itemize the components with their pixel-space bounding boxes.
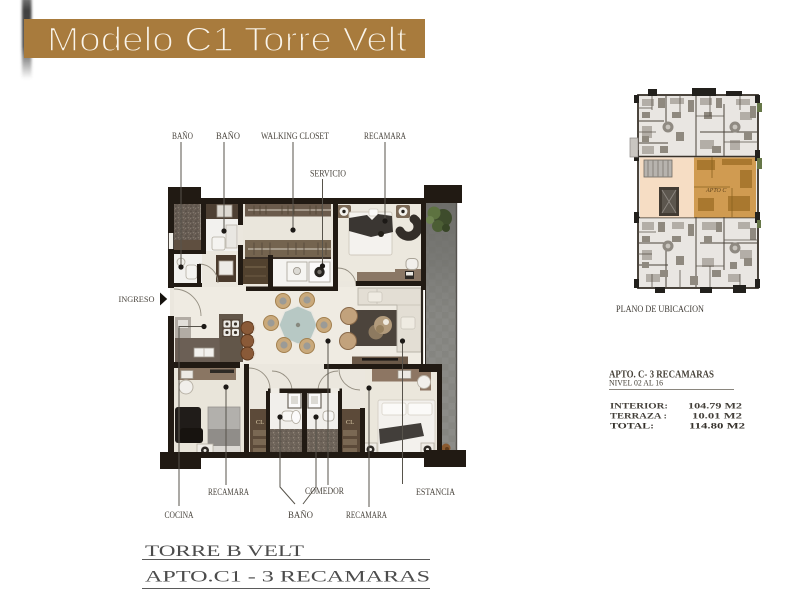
svg-text:NIVEL 02 AL 16: NIVEL 02 AL 16 bbox=[609, 379, 663, 388]
svg-text:ESTANCIA: ESTANCIA bbox=[416, 487, 455, 497]
svg-text:BAÑO: BAÑO bbox=[288, 510, 313, 520]
svg-text:RECAMARA: RECAMARA bbox=[208, 487, 249, 497]
svg-text:WALKING CLOSET: WALKING CLOSET bbox=[261, 131, 329, 141]
svg-text:APTO C: APTO C bbox=[705, 188, 727, 194]
svg-text:INGRESO: INGRESO bbox=[119, 294, 155, 304]
svg-text:CL: CL bbox=[346, 419, 354, 426]
svg-text:10.01 M2: 10.01 M2 bbox=[692, 412, 742, 421]
svg-text:COMEDOR: COMEDOR bbox=[305, 486, 344, 496]
svg-text:TOTAL:: TOTAL: bbox=[610, 421, 654, 431]
svg-text:APTO.C1 - 3 RECAMARAS: APTO.C1 - 3 RECAMARAS bbox=[145, 569, 430, 586]
svg-text:TORRE B VELT: TORRE B VELT bbox=[145, 543, 304, 560]
svg-text:RECAMARA: RECAMARA bbox=[346, 510, 387, 520]
svg-text:104.79 M2: 104.79 M2 bbox=[688, 402, 742, 411]
svg-text:114.80 M2: 114.80 M2 bbox=[689, 421, 745, 431]
svg-text:RECAMARA: RECAMARA bbox=[364, 131, 406, 141]
svg-text:COCINA: COCINA bbox=[165, 510, 194, 520]
svg-text:PLANO DE UBICACION: PLANO DE UBICACION bbox=[616, 305, 704, 315]
svg-text:BAÑO: BAÑO bbox=[216, 131, 240, 141]
svg-text:CL: CL bbox=[256, 419, 264, 426]
svg-text:INTERIOR:: INTERIOR: bbox=[610, 402, 668, 411]
svg-text:BAÑO: BAÑO bbox=[172, 131, 193, 141]
svg-text:Modelo C1 Torre Velt: Modelo C1 Torre Velt bbox=[47, 21, 408, 59]
svg-text:TERRAZA :: TERRAZA : bbox=[610, 412, 667, 421]
svg-text:SERVICIO: SERVICIO bbox=[310, 169, 346, 179]
